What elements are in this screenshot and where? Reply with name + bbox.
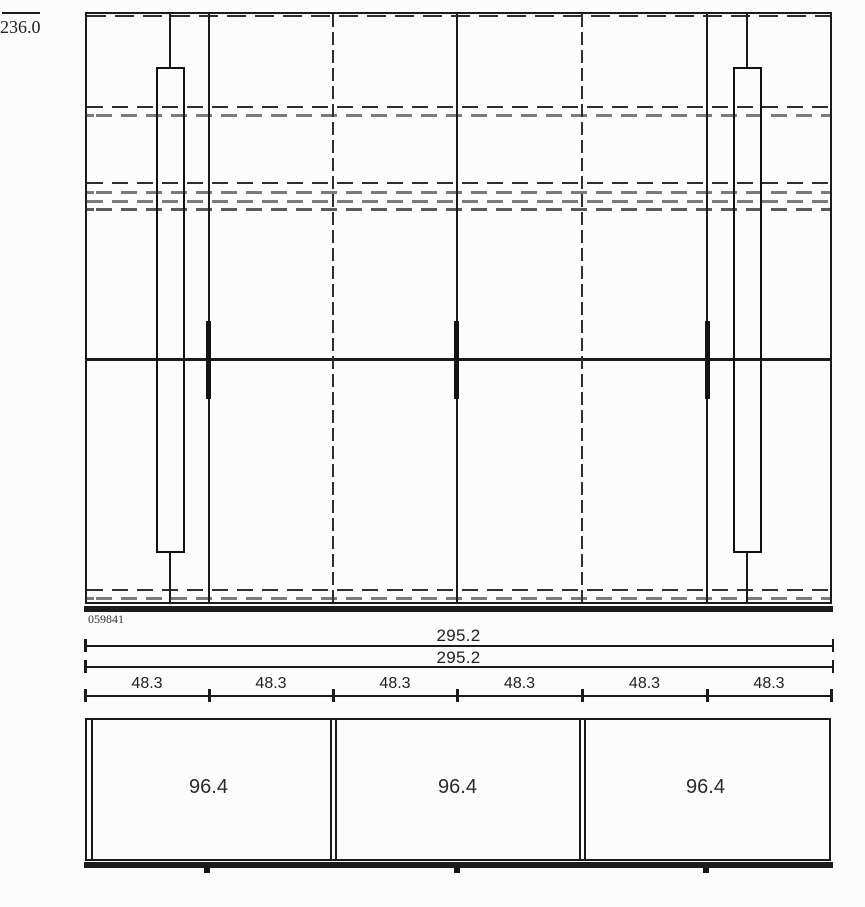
height-dimension-label: 236.0: [0, 17, 62, 38]
shelf-dashed-line: [87, 200, 830, 203]
plan-view: 96.4 96.4 96.4: [85, 718, 831, 861]
technical-drawing-canvas: 236.0: [0, 0, 865, 907]
dim3-tick: [456, 689, 460, 702]
plan-module-divider-2: [579, 720, 586, 859]
dim3-tick: [581, 689, 585, 702]
dim3-tick: [84, 689, 88, 702]
dim3-tick: [208, 689, 212, 702]
door-width-label: 48.3: [729, 675, 809, 693]
dimension-line-2: [85, 666, 833, 668]
door-line-4-dashed: [581, 14, 584, 603]
dim2-end-tick-left: [84, 660, 87, 673]
door-handle-bar: [454, 321, 459, 399]
plan-foot-mark: [703, 868, 709, 873]
height-dim-overline: [2, 12, 40, 14]
door-line-3: [456, 14, 458, 603]
plan-foot-mark: [454, 868, 460, 873]
shelf-dashed-line: [87, 597, 830, 600]
door-width-label: 48.3: [480, 675, 560, 693]
door-width-label: 48.3: [605, 675, 685, 693]
plan-module-divider-1: [330, 720, 337, 859]
plan-left-inner-line: [91, 720, 93, 859]
right-handle-rod-top: [746, 14, 749, 67]
dimension-line-1: [85, 645, 833, 647]
overall-width-label-2: 295.2: [85, 648, 832, 668]
dim3-tick: [706, 689, 710, 702]
shelf-dashed-line: [87, 106, 830, 108]
module-width-label: 96.4: [656, 776, 756, 799]
right-tall-handle: [733, 67, 762, 553]
top-panel-dashed-line: [87, 15, 830, 17]
overall-width-label-1: 295.2: [85, 626, 832, 646]
door-width-label: 48.3: [107, 675, 187, 693]
dim3-tick: [830, 689, 834, 702]
door-line-5: [706, 14, 709, 603]
right-handle-rod-bottom: [746, 552, 749, 603]
shelf-dashed-line: [87, 589, 830, 591]
plan-foot-mark: [204, 868, 210, 873]
door-line-1: [208, 14, 210, 603]
shelf-dashed-line: [87, 114, 830, 117]
shelf-dashed-line: [87, 208, 830, 211]
elevation-bottom-line: [85, 602, 832, 604]
left-handle-rod-bottom: [169, 552, 172, 603]
left-tall-handle: [156, 67, 185, 553]
door-width-label: 48.3: [231, 675, 311, 693]
door-width-label: 48.3: [355, 675, 435, 693]
elevation-view: [85, 12, 832, 603]
door-handle-bar: [206, 321, 211, 399]
shelf-dashed-line: [87, 191, 830, 194]
module-width-label: 96.4: [408, 776, 508, 799]
dim3-tick: [332, 689, 336, 702]
door-handle-bar: [705, 321, 710, 399]
left-handle-rod-top: [169, 14, 172, 67]
shelf-dashed-line: [87, 182, 830, 184]
module-width-label: 96.4: [159, 776, 259, 799]
dim2-end-tick-right: [832, 660, 835, 673]
drawing-number-label: 059841: [88, 612, 124, 627]
door-line-2-dashed: [332, 14, 335, 603]
elevation-plinth-band: [84, 606, 833, 612]
